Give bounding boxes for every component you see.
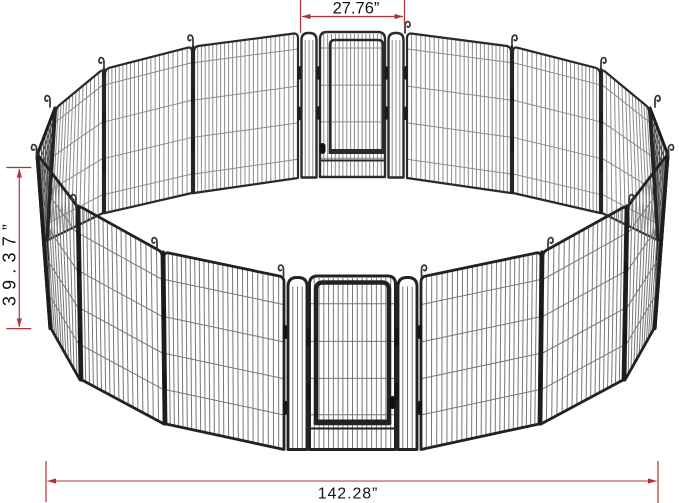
svg-text:142.28”: 142.28” bbox=[318, 486, 379, 503]
svg-text:27.76”: 27.76” bbox=[333, 0, 380, 18]
svg-text:39.37”: 39.37” bbox=[0, 218, 20, 306]
